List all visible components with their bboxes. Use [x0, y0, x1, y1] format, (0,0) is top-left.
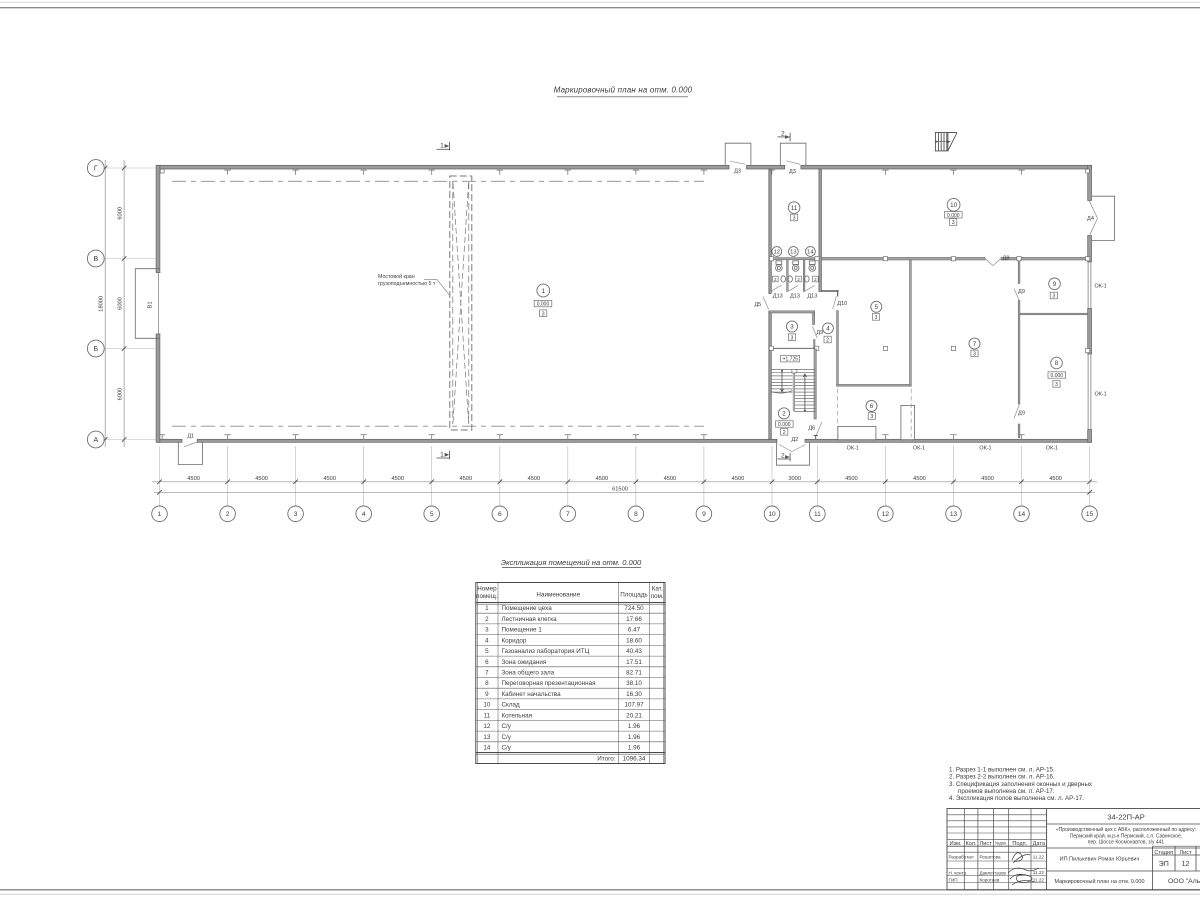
svg-text:Лист: Лист — [980, 841, 993, 847]
svg-text:14: 14 — [483, 745, 491, 752]
svg-text:3: 3 — [1055, 382, 1058, 388]
svg-text:16.30: 16.30 — [626, 691, 642, 698]
svg-text:Г: Г — [94, 166, 98, 173]
svg-text:13: 13 — [483, 734, 491, 741]
svg-text:17.51: 17.51 — [626, 659, 642, 666]
svg-text:проемов выполнена см. л. АР-17: проемов выполнена см. л. АР-17. — [958, 788, 1055, 795]
svg-text:+1.725: +1.725 — [783, 357, 799, 363]
svg-text:5: 5 — [875, 304, 879, 311]
svg-text:82.71: 82.71 — [626, 670, 642, 677]
svg-text:4500: 4500 — [596, 476, 609, 482]
svg-text:6000: 6000 — [117, 297, 123, 310]
svg-text:4500: 4500 — [664, 476, 677, 482]
svg-text:Итого:: Итого: — [597, 756, 616, 763]
svg-text:А: А — [93, 437, 98, 444]
svg-text:0.000: 0.000 — [778, 422, 791, 428]
svg-text:Д5: Д5 — [754, 302, 761, 308]
svg-text:2: 2 — [814, 277, 817, 282]
svg-text:3: 3 — [790, 324, 794, 331]
svg-text:2: 2 — [226, 511, 230, 518]
svg-text:Н. контр.: Н. контр. — [949, 871, 968, 876]
svg-text:Б: Б — [94, 346, 99, 353]
svg-text:11: 11 — [791, 205, 798, 212]
svg-text:Котельная: Котельная — [502, 712, 532, 719]
svg-text:3: 3 — [1052, 294, 1055, 300]
svg-text:ОК-1: ОК-1 — [1095, 283, 1107, 289]
svg-text:0.000: 0.000 — [1051, 373, 1064, 379]
svg-text:6000: 6000 — [117, 388, 123, 401]
svg-text:Переговорная презентационная: Переговорная презентационная — [502, 680, 596, 687]
svg-text:6: 6 — [870, 403, 874, 410]
svg-text:15: 15 — [1086, 511, 1094, 518]
svg-text:4. Экспликация полов выполнена: 4. Экспликация полов выполнена см. л. АР… — [949, 795, 1084, 802]
svg-text:Д2: Д2 — [791, 437, 798, 443]
svg-text:Экспликация помещений на отм.: Экспликация помещений на отм. 0.000 — [501, 558, 642, 567]
svg-text:Наименование: Наименование — [536, 592, 580, 599]
svg-text:107.97: 107.97 — [624, 702, 644, 709]
svg-text:ОК-1: ОК-1 — [913, 446, 925, 452]
svg-text:17.66: 17.66 — [626, 616, 642, 623]
svg-text:ОК-1: ОК-1 — [1095, 391, 1107, 397]
svg-text:Д13: Д13 — [790, 293, 800, 299]
svg-text:2. Разрез 2-2 выполнен см. л.: 2. Разрез 2-2 выполнен см. л. АР-16. — [949, 774, 1055, 781]
svg-text:3: 3 — [870, 414, 873, 420]
svg-text:грузоподъемностью 5 т: грузоподъемностью 5 т — [378, 281, 436, 287]
svg-text:Помещение 1: Помещение 1 — [502, 627, 543, 634]
svg-text:Кат.: Кат. — [652, 586, 663, 593]
svg-text:3. Спецификация заполнения око: 3. Спецификация заполнения оконных и две… — [949, 781, 1093, 788]
svg-text:Газоанализ лаборатория ИТЦ: Газоанализ лаборатория ИТЦ — [502, 647, 590, 655]
svg-text:3: 3 — [791, 335, 794, 341]
svg-text:Лист: Лист — [1180, 850, 1192, 856]
svg-text:Мостовой кран: Мостовой кран — [378, 273, 415, 280]
svg-text:4: 4 — [485, 637, 489, 644]
svg-text:1: 1 — [541, 288, 545, 295]
svg-text:1.96: 1.96 — [628, 734, 641, 741]
svg-text:0.000: 0.000 — [947, 213, 960, 219]
svg-text:1096.34: 1096.34 — [623, 756, 646, 763]
svg-text:6: 6 — [485, 659, 489, 666]
svg-text:14: 14 — [807, 250, 814, 256]
svg-text:Зона общего зала: Зона общего зала — [502, 669, 555, 677]
svg-text:10: 10 — [483, 702, 491, 709]
svg-text:ОК-1: ОК-1 — [979, 446, 991, 452]
svg-text:8: 8 — [1055, 360, 1059, 367]
svg-text:8: 8 — [485, 680, 489, 687]
svg-text:3: 3 — [875, 315, 878, 321]
svg-text:4500: 4500 — [732, 476, 745, 482]
svg-text:10: 10 — [950, 202, 957, 209]
svg-text:2: 2 — [781, 130, 785, 137]
svg-text:7: 7 — [485, 670, 489, 677]
svg-text:4500: 4500 — [845, 476, 858, 482]
svg-text:Д4: Д4 — [1087, 216, 1094, 222]
svg-text:Д10: Д10 — [837, 301, 847, 307]
svg-text:8: 8 — [634, 511, 638, 518]
svg-text:Лестничная клетка: Лестничная клетка — [502, 616, 558, 623]
svg-text:№док.: №док. — [995, 841, 1007, 846]
svg-text:1.96: 1.96 — [628, 745, 641, 752]
svg-text:1: 1 — [485, 605, 489, 612]
svg-text:9: 9 — [702, 511, 706, 518]
svg-text:18.60: 18.60 — [626, 637, 642, 644]
svg-text:помещ.: помещ. — [476, 593, 498, 600]
svg-text:Пермский край, м.р-н Пермский,: Пермский край, м.р-н Пермский, с.п. Сави… — [1070, 832, 1182, 839]
svg-text:Д9: Д9 — [1018, 411, 1025, 417]
svg-text:2: 2 — [797, 277, 800, 282]
svg-text:«Производственный цех с АБК»,: «Производственный цех с АБК», расположен… — [1056, 826, 1196, 833]
svg-text:6000: 6000 — [117, 207, 123, 220]
svg-text:13: 13 — [950, 511, 958, 518]
svg-text:4: 4 — [362, 511, 366, 518]
svg-text:Стадия: Стадия — [1154, 850, 1173, 856]
svg-text:Д3: Д3 — [789, 169, 796, 175]
svg-text:12: 12 — [1182, 861, 1190, 868]
svg-text:2: 2 — [826, 338, 829, 344]
svg-text:ОК-1: ОК-1 — [847, 446, 859, 452]
svg-text:0.000: 0.000 — [537, 302, 550, 308]
svg-text:13: 13 — [790, 250, 796, 256]
svg-text:Помещение цеха: Помещение цеха — [502, 605, 553, 612]
svg-text:Д8: Д8 — [1003, 255, 1010, 261]
svg-text:4500: 4500 — [981, 476, 994, 482]
svg-text:2: 2 — [781, 452, 785, 459]
svg-text:Решетова: Решетова — [980, 855, 1002, 860]
svg-text:Д9: Д9 — [1018, 289, 1025, 295]
svg-text:Площадь: Площадь — [620, 592, 648, 599]
svg-text:Д13: Д13 — [807, 293, 817, 299]
svg-text:61500: 61500 — [612, 486, 628, 492]
svg-text:5: 5 — [430, 511, 434, 518]
svg-text:Коротаев: Коротаев — [980, 878, 1000, 883]
svg-text:11.22: 11.22 — [1033, 878, 1045, 883]
svg-text:1. Разрез 1-1 выполнен см. л.: 1. Разрез 1-1 выполнен см. л. АР-15. — [949, 767, 1055, 774]
svg-text:В1: В1 — [148, 301, 154, 308]
svg-text:4500: 4500 — [459, 476, 472, 482]
svg-text:пом.: пом. — [651, 593, 664, 600]
svg-text:5: 5 — [485, 648, 489, 655]
svg-text:Кол.: Кол. — [966, 841, 978, 847]
svg-text:12: 12 — [882, 511, 890, 518]
svg-text:ЭП: ЭП — [1159, 861, 1169, 868]
svg-text:10: 10 — [768, 511, 776, 518]
svg-text:Д3: Д3 — [734, 169, 741, 175]
svg-text:1: 1 — [158, 511, 162, 518]
svg-text:4500: 4500 — [255, 476, 268, 482]
svg-text:3: 3 — [294, 511, 298, 518]
svg-text:С/у: С/у — [502, 734, 512, 741]
svg-text:14: 14 — [1018, 511, 1026, 518]
svg-text:12: 12 — [774, 250, 780, 256]
svg-text:3: 3 — [952, 220, 955, 226]
svg-text:Д13: Д13 — [773, 293, 783, 299]
svg-text:Номер: Номер — [477, 586, 497, 593]
svg-text:3: 3 — [485, 627, 489, 634]
svg-text:724.50: 724.50 — [624, 605, 644, 612]
svg-text:18000: 18000 — [98, 296, 104, 312]
svg-text:2: 2 — [485, 616, 489, 623]
svg-text:11: 11 — [814, 511, 821, 518]
svg-text:6.47: 6.47 — [628, 627, 641, 634]
svg-text:ГИП: ГИП — [949, 878, 958, 883]
svg-text:С/у: С/у — [502, 745, 512, 752]
svg-text:4500: 4500 — [1049, 476, 1062, 482]
svg-text:Д9: Д9 — [817, 330, 824, 336]
svg-text:9: 9 — [485, 691, 489, 698]
svg-text:Д6: Д6 — [808, 426, 815, 432]
svg-text:Давлетгазов: Давлетгазов — [980, 871, 1007, 876]
svg-text:В: В — [93, 256, 98, 263]
svg-text:3: 3 — [793, 216, 796, 222]
svg-text:9: 9 — [1053, 281, 1057, 288]
svg-text:4500: 4500 — [187, 476, 200, 482]
svg-text:11: 11 — [484, 712, 491, 719]
svg-text:ООО "Альфа: ООО "Альфа — [1168, 878, 1200, 885]
svg-text:20.21: 20.21 — [626, 712, 642, 719]
svg-text:2: 2 — [774, 277, 777, 282]
svg-text:Разработал: Разработал — [949, 855, 974, 860]
svg-text:4500: 4500 — [527, 476, 540, 482]
svg-text:4500: 4500 — [391, 476, 404, 482]
svg-text:11.22: 11.22 — [1033, 855, 1045, 860]
svg-text:38.10: 38.10 — [626, 680, 642, 687]
svg-text:ИП Пилькевич Роман Юрьевич: ИП Пилькевич Роман Юрьевич — [1060, 856, 1140, 862]
svg-text:7: 7 — [566, 511, 570, 518]
svg-text:3: 3 — [973, 352, 976, 358]
svg-text:С/у: С/у — [502, 723, 512, 730]
svg-text:Изм.: Изм. — [950, 841, 962, 847]
svg-text:Дата: Дата — [1033, 841, 1046, 847]
svg-text:1.96: 1.96 — [628, 723, 641, 730]
svg-text:40.43: 40.43 — [626, 648, 642, 655]
svg-text:2: 2 — [783, 430, 786, 436]
svg-text:Подп.: Подп. — [1012, 841, 1027, 847]
svg-text:3: 3 — [542, 311, 545, 317]
svg-text:4500: 4500 — [913, 476, 926, 482]
svg-text:2: 2 — [782, 411, 786, 418]
svg-text:4: 4 — [826, 326, 830, 333]
svg-text:Кабинет начальства: Кабинет начальства — [502, 690, 562, 698]
svg-text:Коридор: Коридор — [502, 637, 527, 644]
svg-text:пер. Шоссе Космонавтов, з/у 44: пер. Шоссе Космонавтов, з/у 441 — [1088, 840, 1165, 846]
svg-text:Маркировочный план на отм. 0.0: Маркировочный план на отм. 0.000 — [1054, 878, 1144, 885]
svg-text:Д1: Д1 — [187, 434, 194, 440]
svg-text:1: 1 — [440, 143, 444, 150]
svg-text:4500: 4500 — [323, 476, 336, 482]
svg-text:7: 7 — [973, 341, 977, 348]
svg-text:Маркировочный план на отм. 0.: Маркировочный план на отм. 0.000 — [554, 86, 693, 95]
svg-text:6: 6 — [498, 511, 502, 518]
svg-text:1: 1 — [440, 451, 444, 458]
svg-text:Зона ожидания: Зона ожидания — [502, 659, 547, 666]
svg-text:Склад: Склад — [502, 702, 521, 709]
svg-text:ОК-1: ОК-1 — [1046, 446, 1058, 452]
svg-text:3000: 3000 — [788, 476, 801, 482]
svg-text:11.22: 11.22 — [1033, 870, 1045, 875]
svg-text:12: 12 — [483, 723, 491, 730]
svg-text:34-22П-АР: 34-22П-АР — [1107, 812, 1145, 821]
